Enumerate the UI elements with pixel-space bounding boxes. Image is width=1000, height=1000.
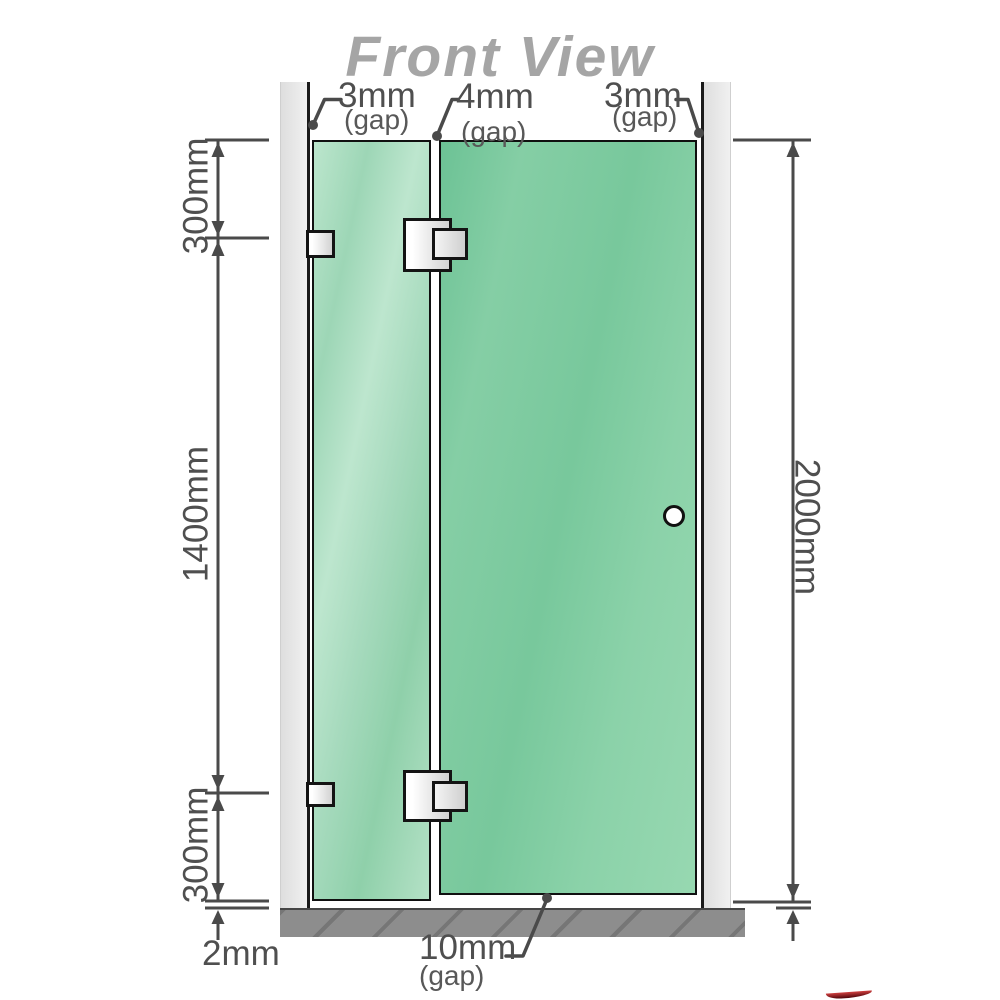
dimension-lines [0,0,1000,1000]
label-gap-middle-note: (gap) [461,118,526,146]
label-gap-middle-value: 4mm [456,79,534,114]
front-view-diagram: Front View [0,0,1000,1000]
label-gap-left-note: (gap) [344,106,409,134]
label-door-floor-gap-note: (gap) [419,962,484,990]
leader-gap-left [313,100,341,126]
leader-gap-middle [437,100,458,137]
label-height-middle-1400: 1400mm [179,446,214,582]
label-floor-gap-2mm: 2mm [202,936,280,971]
label-height-top-300: 300mm [179,138,214,255]
label-height-bottom-300: 300mm [179,787,214,904]
label-gap-right-note: (gap) [612,103,677,131]
label-total-height-2000: 2000mm [790,459,825,595]
